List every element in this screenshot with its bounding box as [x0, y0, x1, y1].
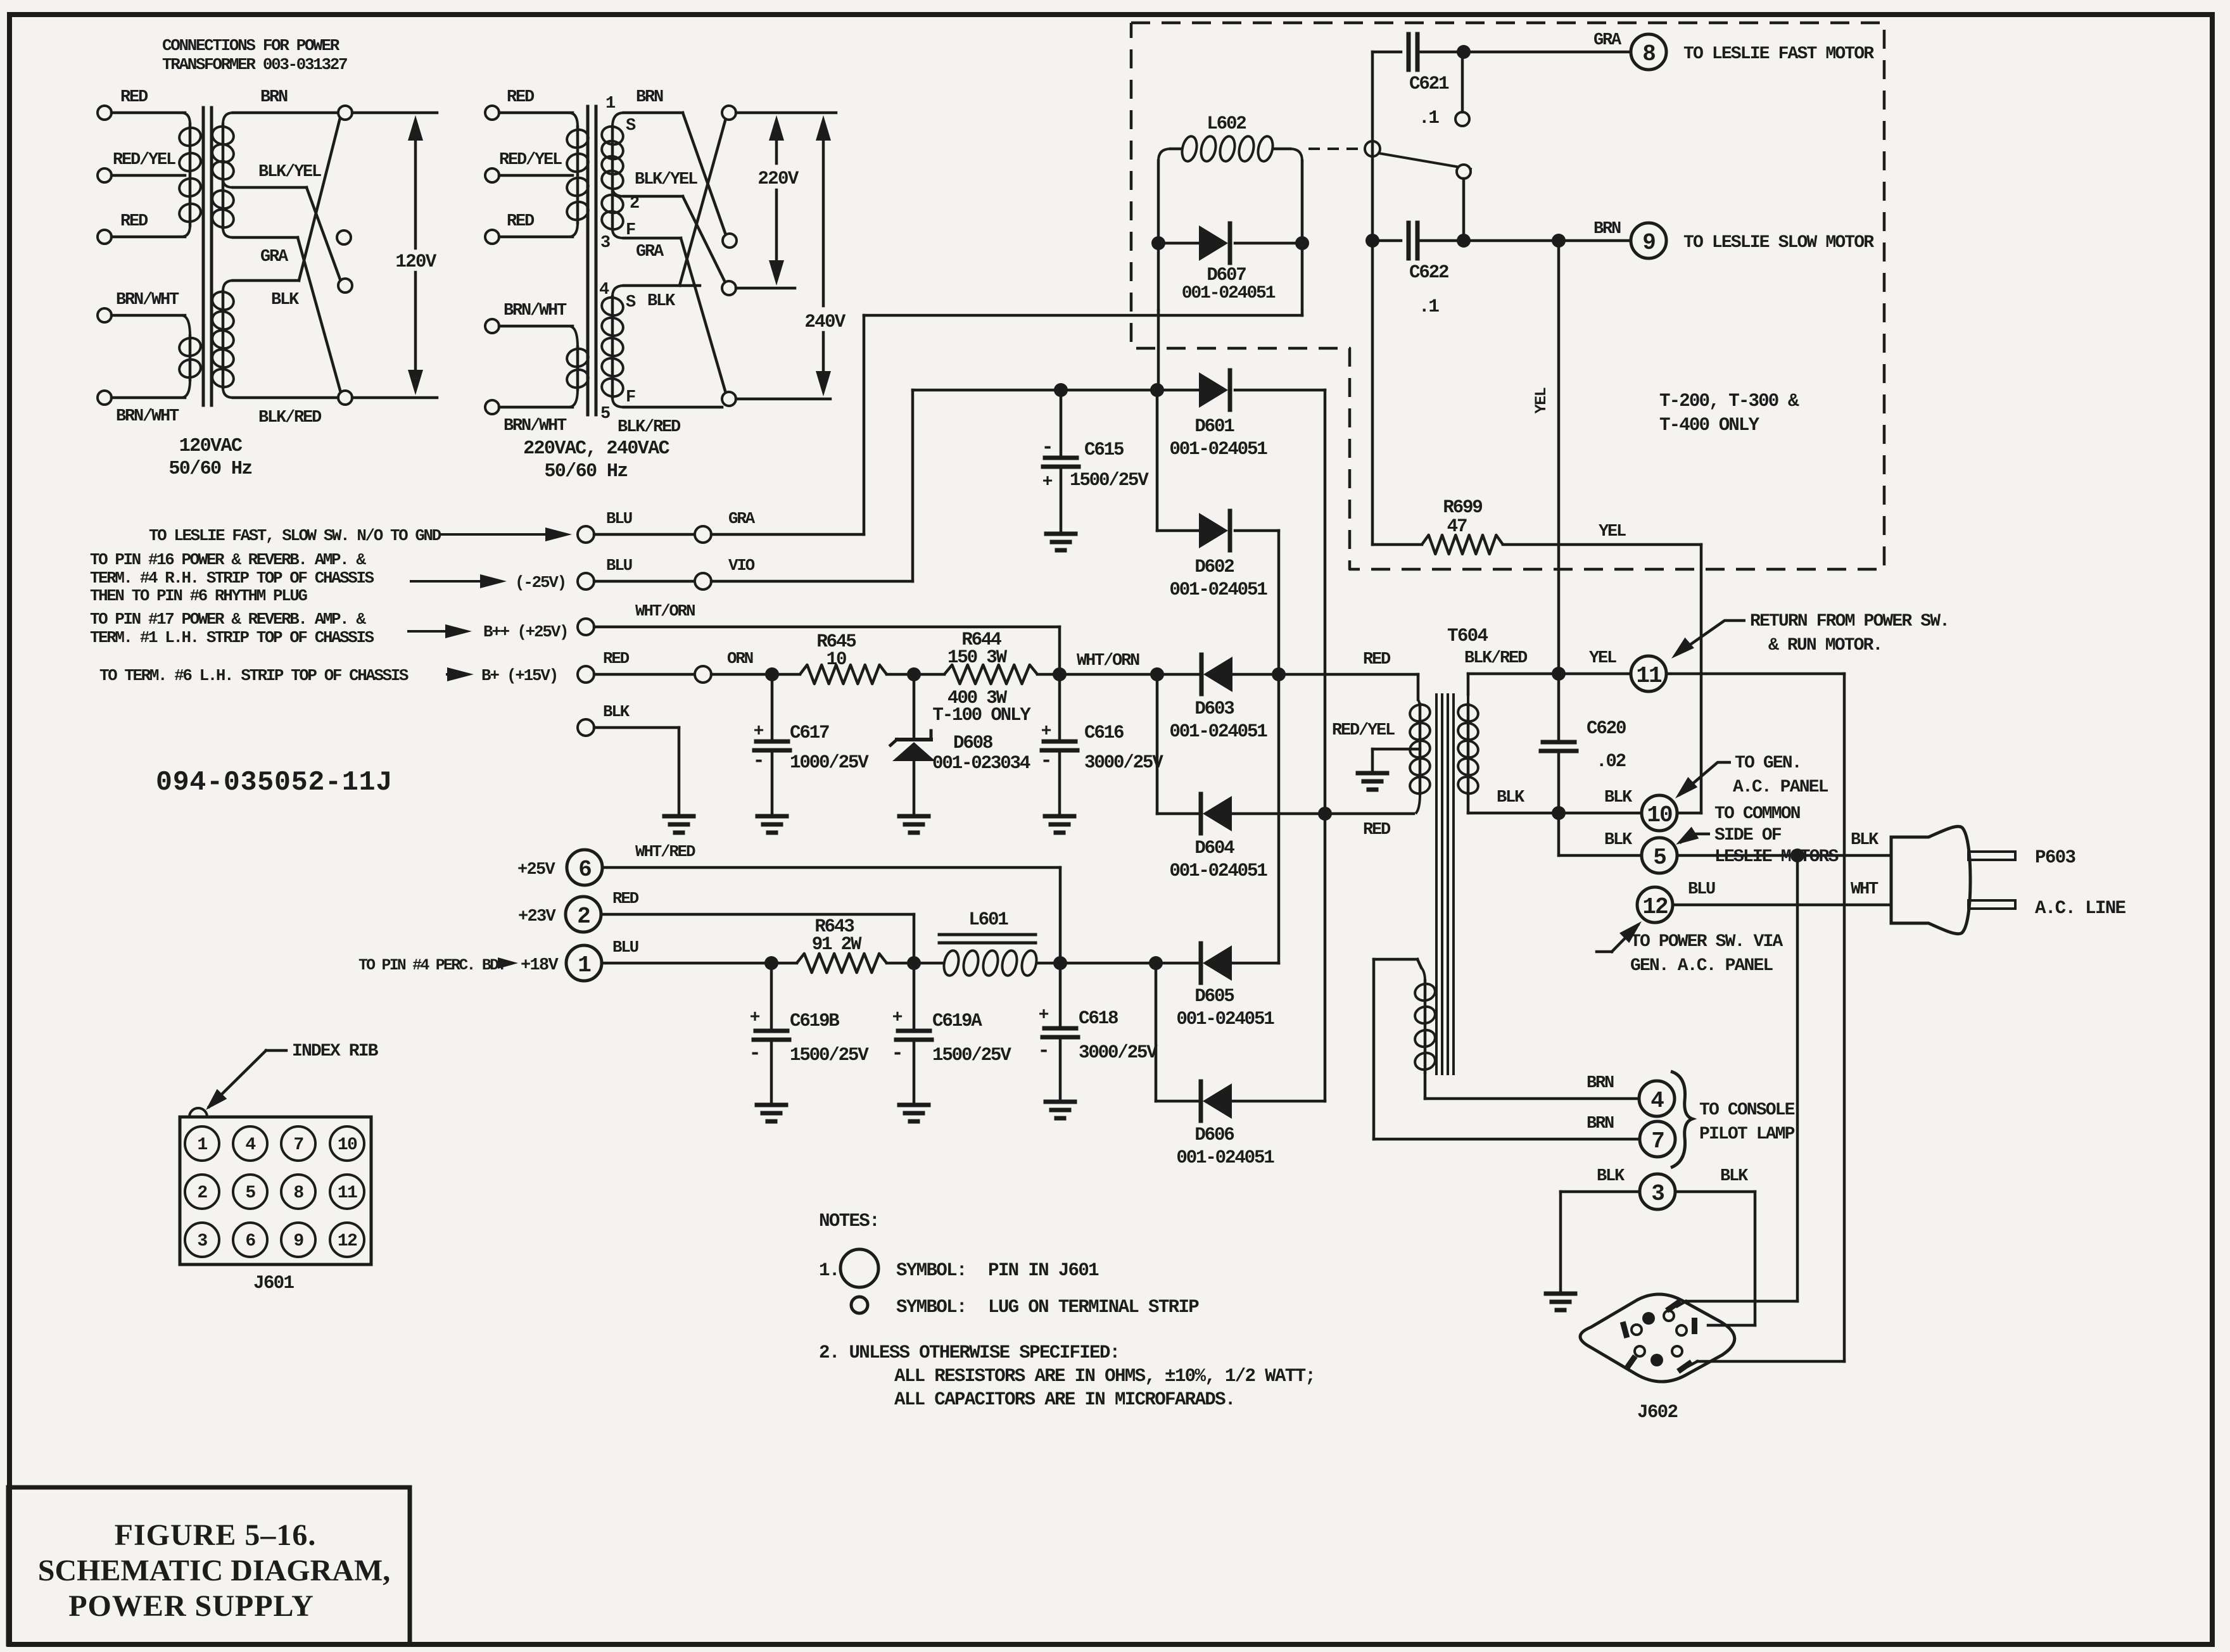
svg-text:BLK: BLK — [1851, 831, 1879, 850]
svg-text:3000/25V: 3000/25V — [1079, 1042, 1158, 1063]
svg-text:001-023034: 001-023034 — [932, 753, 1030, 774]
svg-text:C618: C618 — [1079, 1008, 1118, 1029]
svg-text:BLU: BLU — [1688, 880, 1715, 899]
svg-text:+: + — [1041, 722, 1051, 741]
svg-text:SIDE OF: SIDE OF — [1714, 826, 1782, 845]
svg-text:RETURN FROM POWER SW.: RETURN FROM POWER SW. — [1750, 612, 1949, 631]
svg-text:NOTES:: NOTES: — [819, 1211, 879, 1232]
svg-text:RED: RED — [120, 212, 148, 231]
svg-text:001-024051: 001-024051 — [1169, 721, 1267, 742]
svg-text:12: 12 — [1642, 894, 1668, 920]
svg-text:B+ (+15V): B+ (+15V) — [481, 666, 557, 685]
svg-text:BLU: BLU — [606, 509, 632, 528]
svg-text:SCHEMATIC DIAGRAM,: SCHEMATIC DIAGRAM, — [38, 1554, 390, 1587]
svg-text:1000/25V: 1000/25V — [790, 752, 869, 773]
svg-text:1.: 1. — [819, 1260, 839, 1281]
svg-text:BLK: BLK — [271, 291, 300, 310]
svg-text:.02: .02 — [1596, 751, 1626, 772]
svg-text:BLK: BLK — [1604, 831, 1633, 850]
svg-text:C616: C616 — [1084, 722, 1124, 743]
svg-text:D603: D603 — [1194, 698, 1234, 719]
svg-text:CONNECTIONS FOR POWER: CONNECTIONS FOR POWER — [162, 36, 340, 55]
svg-text:C621: C621 — [1409, 73, 1449, 94]
svg-text:S: S — [626, 293, 636, 312]
svg-text:BRN/WHT: BRN/WHT — [504, 417, 567, 436]
svg-text:10: 10 — [827, 649, 846, 670]
svg-text:BRN/WHT: BRN/WHT — [116, 407, 179, 426]
svg-text:(-25V): (-25V) — [515, 573, 566, 592]
svg-text:TO LESLIE FAST MOTOR: TO LESLIE FAST MOTOR — [1683, 44, 1874, 64]
svg-text:+: + — [1039, 1006, 1049, 1025]
svg-text:220VAC, 240VAC: 220VAC, 240VAC — [523, 438, 669, 460]
svg-text:SYMBOL:: SYMBOL: — [896, 1297, 966, 1318]
svg-text:BLK: BLK — [1597, 1167, 1625, 1186]
svg-text:001-024051: 001-024051 — [1169, 579, 1267, 600]
svg-text:2. UNLESS OTHERWISE SPECIFIED:: 2. UNLESS OTHERWISE SPECIFIED: — [819, 1342, 1119, 1363]
svg-text:YEL: YEL — [1599, 522, 1626, 541]
svg-text:RED: RED — [120, 88, 148, 107]
svg-text:BRN: BRN — [1587, 1114, 1614, 1133]
svg-text:1: 1 — [578, 952, 591, 978]
svg-text:+23V: +23V — [518, 907, 557, 926]
svg-text:BLK/RED: BLK/RED — [258, 408, 322, 427]
svg-text:4: 4 — [599, 281, 609, 300]
svg-text:L601: L601 — [968, 909, 1008, 930]
svg-text:C619B: C619B — [790, 1011, 839, 1031]
svg-text:1500/25V: 1500/25V — [932, 1045, 1011, 1066]
svg-text:2: 2 — [197, 1183, 207, 1203]
svg-text:WHT/ORN: WHT/ORN — [1077, 652, 1139, 671]
svg-text:FIGURE 5–16.: FIGURE 5–16. — [115, 1518, 317, 1552]
svg-text:+: + — [754, 722, 764, 741]
svg-text:B++ (+25V): B++ (+25V) — [483, 622, 567, 641]
svg-text:5: 5 — [1653, 845, 1666, 871]
svg-text:8: 8 — [293, 1183, 303, 1203]
svg-text:C622: C622 — [1409, 262, 1448, 283]
svg-text:THEN TO PIN #6 RHYTHM PLUG: THEN TO PIN #6 RHYTHM PLUG — [90, 586, 307, 605]
svg-text:BRN: BRN — [1593, 220, 1621, 239]
svg-text:-: - — [891, 1042, 902, 1065]
svg-text:120VAC: 120VAC — [179, 436, 243, 457]
svg-text:1: 1 — [197, 1135, 207, 1155]
svg-text:50/60 Hz: 50/60 Hz — [544, 461, 627, 482]
svg-text:D601: D601 — [1194, 416, 1234, 437]
svg-text:001-024051: 001-024051 — [1176, 1009, 1274, 1030]
svg-text:001-024051: 001-024051 — [1176, 1147, 1274, 1168]
svg-text:RED: RED — [1363, 821, 1391, 840]
svg-text:D607: D607 — [1207, 265, 1246, 286]
svg-text:TO PIN #16 POWER & REVERB. AMP: TO PIN #16 POWER & REVERB. AMP. & — [90, 550, 366, 569]
svg-text:TO PIN #4 PERC. BD.: TO PIN #4 PERC. BD. — [358, 957, 505, 974]
svg-text:47: 47 — [1447, 516, 1467, 537]
svg-text:ALL CAPACITORS ARE IN MICROFAR: ALL CAPACITORS ARE IN MICROFARADS. — [894, 1389, 1235, 1410]
svg-text:F: F — [626, 388, 635, 407]
svg-text:001-024051: 001-024051 — [1182, 284, 1276, 303]
svg-text:6: 6 — [578, 857, 591, 883]
svg-text:YEL: YEL — [1532, 388, 1550, 413]
svg-text:BLK/RED: BLK/RED — [618, 418, 681, 437]
svg-text:RED/YEL: RED/YEL — [499, 151, 562, 170]
svg-text:TERM. #1 L.H. STRIP TOP OF CHA: TERM. #1 L.H. STRIP TOP OF CHASSIS — [90, 628, 374, 647]
svg-text:RED: RED — [1363, 650, 1391, 669]
svg-text:BLU: BLU — [606, 556, 632, 575]
svg-text:12: 12 — [338, 1232, 357, 1251]
svg-text:001-024051: 001-024051 — [1169, 439, 1267, 460]
svg-text:D605: D605 — [1194, 986, 1234, 1007]
svg-text:T-400 ONLY: T-400 ONLY — [1659, 415, 1760, 436]
svg-text:RED: RED — [507, 88, 535, 107]
svg-text:PILOT LAMP: PILOT LAMP — [1699, 1125, 1795, 1144]
svg-text:BLU: BLU — [612, 938, 638, 957]
svg-text:C620: C620 — [1587, 718, 1626, 739]
svg-text:+18V: +18V — [521, 956, 559, 975]
svg-text:RED/YEL: RED/YEL — [113, 151, 175, 170]
svg-text:BRN: BRN — [636, 88, 663, 107]
svg-text:-: - — [1037, 1039, 1048, 1062]
svg-text:S: S — [626, 117, 636, 136]
svg-text:ALL RESISTORS ARE IN OHMS, ±10: ALL RESISTORS ARE IN OHMS, ±10%, 1/2 WAT… — [894, 1366, 1315, 1387]
svg-text:C615: C615 — [1084, 439, 1124, 460]
svg-text:-: - — [1041, 436, 1052, 459]
svg-text:11: 11 — [338, 1183, 357, 1203]
svg-text:SYMBOL:: SYMBOL: — [896, 1260, 966, 1281]
svg-text:240V: 240V — [804, 312, 846, 332]
svg-text:BRN/WHT: BRN/WHT — [116, 291, 179, 310]
svg-text:ORN: ORN — [727, 649, 753, 668]
svg-text:001-024051: 001-024051 — [1169, 861, 1267, 881]
svg-text:GRA: GRA — [1593, 31, 1622, 50]
svg-text:BLK: BLK — [1604, 788, 1633, 807]
svg-text:5: 5 — [245, 1183, 255, 1203]
svg-text:2: 2 — [577, 904, 590, 930]
svg-text:1: 1 — [605, 94, 616, 113]
svg-text:3: 3 — [1651, 1181, 1664, 1207]
svg-text:91 2W: 91 2W — [812, 934, 862, 955]
svg-text:TO TERM. #6 L.H. STRIP TOP OF: TO TERM. #6 L.H. STRIP TOP OF CHASSIS — [99, 666, 409, 685]
svg-text:1500/25V: 1500/25V — [790, 1045, 869, 1066]
svg-text:WHT/ORN: WHT/ORN — [635, 602, 695, 621]
svg-text:+: + — [1042, 472, 1053, 492]
svg-text:BRN: BRN — [1587, 1074, 1614, 1093]
svg-text:150 3W: 150 3W — [947, 647, 1008, 668]
svg-text:RED/YEL: RED/YEL — [1332, 721, 1395, 740]
svg-text:GRA: GRA — [260, 248, 289, 267]
svg-text:BRN/WHT: BRN/WHT — [504, 301, 567, 320]
svg-text:7: 7 — [1651, 1128, 1664, 1154]
svg-text:A.C. LINE: A.C. LINE — [2035, 898, 2126, 919]
svg-text:BRN: BRN — [260, 88, 288, 107]
svg-text:-: - — [752, 749, 763, 772]
svg-text:RED: RED — [507, 212, 535, 231]
svg-text:T604: T604 — [1447, 626, 1488, 646]
svg-text:120V: 120V — [395, 251, 436, 272]
svg-text:WHT/RED: WHT/RED — [635, 842, 695, 861]
svg-text:P603: P603 — [2035, 847, 2075, 868]
svg-text:TO PIN #17 POWER & REVERB. AMP: TO PIN #17 POWER & REVERB. AMP. & — [90, 610, 366, 629]
svg-text:C619A: C619A — [932, 1011, 982, 1031]
svg-text:BLK: BLK — [603, 702, 630, 721]
svg-text:TO POWER SW. VIA: TO POWER SW. VIA — [1630, 932, 1783, 952]
svg-text:TO COMMON: TO COMMON — [1714, 804, 1800, 824]
svg-text:BLK: BLK — [647, 292, 676, 311]
svg-text:-: - — [1040, 749, 1051, 772]
svg-text:50/60 Hz: 50/60 Hz — [168, 458, 251, 480]
svg-text:D602: D602 — [1194, 557, 1234, 577]
svg-text:R699: R699 — [1443, 497, 1482, 518]
svg-text:VIO: VIO — [728, 556, 755, 575]
svg-text:.1: .1 — [1419, 296, 1439, 317]
svg-text:PIN IN J601: PIN IN J601 — [988, 1260, 1099, 1281]
svg-text:3: 3 — [197, 1232, 207, 1251]
svg-text:TO GEN.: TO GEN. — [1735, 753, 1801, 773]
svg-text:L602: L602 — [1207, 113, 1246, 134]
svg-text:J601: J601 — [253, 1273, 294, 1294]
svg-text:RED: RED — [612, 889, 639, 908]
svg-text:9: 9 — [293, 1232, 303, 1251]
svg-text:A.C. PANEL: A.C. PANEL — [1733, 778, 1828, 797]
svg-text:3: 3 — [600, 234, 610, 253]
svg-text:1500/25V: 1500/25V — [1070, 470, 1149, 491]
svg-text:BLK/YEL: BLK/YEL — [635, 170, 697, 189]
svg-text:RED: RED — [603, 649, 630, 668]
svg-text:LUG ON TERMINAL STRIP: LUG ON TERMINAL STRIP — [988, 1297, 1199, 1318]
svg-text:BLK: BLK — [1497, 788, 1525, 807]
svg-text:9: 9 — [1642, 230, 1655, 256]
svg-text:WHT: WHT — [1851, 880, 1878, 899]
svg-text:GRA: GRA — [636, 243, 664, 262]
svg-text:BLK/YEL: BLK/YEL — [258, 163, 321, 182]
svg-text:+: + — [892, 1008, 903, 1028]
svg-text:POWER SUPPLY: POWER SUPPLY — [68, 1589, 314, 1623]
svg-text:-: - — [749, 1042, 759, 1065]
svg-text:GEN. A.C. PANEL: GEN. A.C. PANEL — [1630, 956, 1773, 976]
svg-text:GRA: GRA — [728, 509, 756, 528]
svg-text:3000/25V: 3000/25V — [1084, 752, 1163, 773]
svg-text:J602: J602 — [1637, 1402, 1677, 1423]
svg-text:BLK/RED: BLK/RED — [1464, 649, 1528, 668]
svg-text:+25V: +25V — [517, 861, 556, 880]
svg-text:220V: 220V — [757, 168, 799, 189]
svg-text:T-100 ONLY: T-100 ONLY — [932, 705, 1031, 726]
svg-text:4: 4 — [1650, 1088, 1664, 1114]
svg-text:10: 10 — [338, 1135, 357, 1155]
svg-text:INDEX RIB: INDEX RIB — [292, 1042, 379, 1061]
svg-text:T-200, T-300 &: T-200, T-300 & — [1659, 391, 1799, 412]
svg-text:TRANSFORMER 003-031327: TRANSFORMER 003-031327 — [162, 55, 347, 74]
svg-text:10: 10 — [1647, 802, 1672, 828]
svg-text:BLK: BLK — [1720, 1167, 1749, 1186]
svg-text:7: 7 — [293, 1135, 303, 1155]
svg-text:+: + — [750, 1008, 760, 1028]
svg-text:TERM. #4 R.H. STRIP TOP OF CHA: TERM. #4 R.H. STRIP TOP OF CHASSIS — [90, 569, 374, 588]
svg-text:TO CONSOLE: TO CONSOLE — [1699, 1100, 1795, 1120]
svg-text:11: 11 — [1636, 663, 1662, 689]
svg-text:D608: D608 — [953, 733, 992, 753]
svg-text:D606: D606 — [1194, 1125, 1234, 1145]
svg-text:5: 5 — [600, 405, 610, 424]
svg-text:C617: C617 — [790, 722, 829, 743]
svg-text:4: 4 — [245, 1135, 256, 1155]
svg-text:.1: .1 — [1419, 108, 1439, 129]
svg-text:LESLIE MOTORS: LESLIE MOTORS — [1714, 847, 1839, 867]
svg-text:094-035052-11J: 094-035052-11J — [156, 767, 393, 798]
svg-text:& RUN MOTOR.: & RUN MOTOR. — [1768, 636, 1882, 655]
svg-text:6: 6 — [245, 1232, 255, 1251]
svg-text:8: 8 — [1642, 41, 1655, 67]
svg-text:YEL: YEL — [1589, 649, 1616, 668]
svg-text:TO LESLIE SLOW MOTOR: TO LESLIE SLOW MOTOR — [1683, 233, 1874, 253]
svg-text:TO LESLIE FAST, SLOW SW. N/O T: TO LESLIE FAST, SLOW SW. N/O TO GND — [149, 526, 441, 545]
svg-text:D604: D604 — [1194, 838, 1234, 859]
